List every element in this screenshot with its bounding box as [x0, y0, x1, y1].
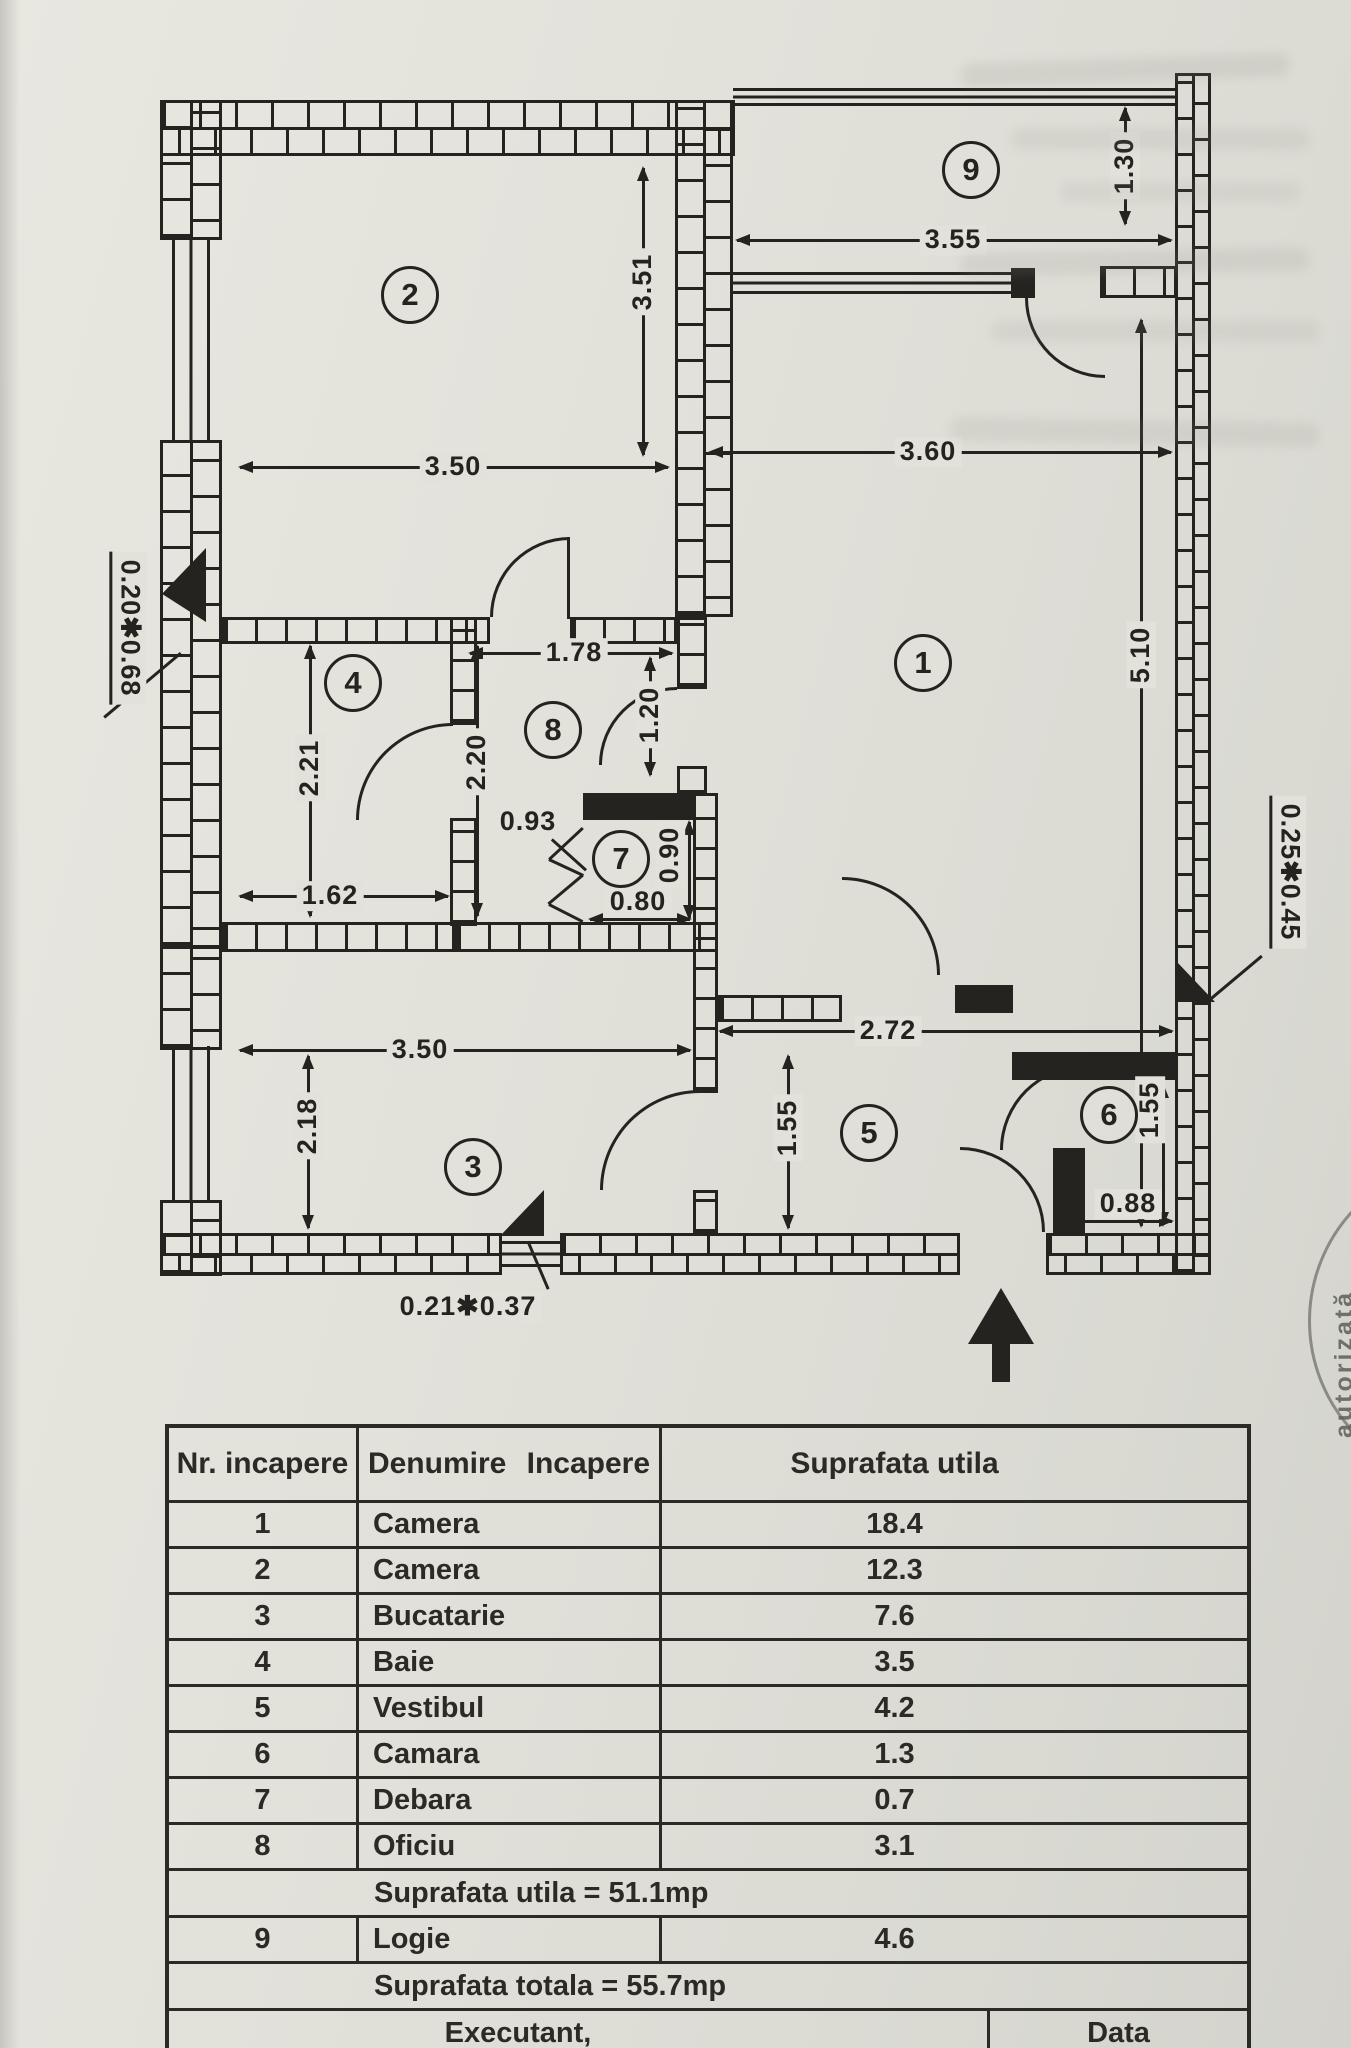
wall-interior [693, 793, 718, 1093]
leader-line [1208, 955, 1263, 1002]
total-label: Suprafata totala = 55.7mp [169, 1970, 726, 2003]
dim-label: 1.55 [773, 1095, 803, 1162]
shaft-label: 0.25✱0.45 [1270, 796, 1307, 949]
cell-name: Bucatarie [356, 1595, 659, 1638]
page-edge-shadow [0, 0, 20, 2048]
table-row: 5 Vestibul 4.2 [169, 1684, 1247, 1730]
dim-line [720, 1030, 1172, 1033]
window [172, 1046, 210, 1202]
wall-exterior [160, 100, 222, 240]
header-nr: Nr. incapere [169, 1447, 356, 1481]
cell-area: 7.6 [659, 1595, 1247, 1638]
table-row: 6 Camara 1.3 [169, 1730, 1247, 1776]
room-number-9: 9 [942, 141, 1000, 199]
loggia-railing [733, 88, 1175, 106]
executant-label: Executant, [169, 2017, 987, 2048]
wall-exterior [675, 100, 733, 617]
cell-area: 12.3 [659, 1549, 1247, 1592]
subtotal-row: Suprafata utila = 51.1mp [169, 1868, 1247, 1915]
dim-label: 3.60 [895, 437, 962, 467]
dim-label: 1.20 [635, 682, 665, 749]
cell-name: Baie [356, 1641, 659, 1684]
table-row: 9 Logie 4.6 [169, 1915, 1247, 1961]
wall-interior [955, 985, 1013, 1013]
table-row: 2 Camera 12.3 [169, 1546, 1247, 1592]
scanned-floor-plan-page: 3.50 3.51 3.55 1.30 3.60 5.10 1.78 1.20 … [0, 0, 1351, 2048]
wall-exterior [560, 1233, 960, 1275]
room-number-1: 1 [894, 634, 952, 692]
wall-interior [677, 766, 707, 796]
dim-label: 1.62 [297, 881, 364, 911]
wall-interior [222, 922, 455, 952]
cell-name: Camera [356, 1549, 659, 1592]
room-number-3: 3 [444, 1138, 502, 1196]
bleed-through-mark [960, 52, 1291, 88]
cell-area: 4.6 [659, 1918, 1247, 1961]
cell-nr: 2 [169, 1554, 356, 1587]
door-arc [842, 877, 940, 975]
bleed-through-mark [950, 417, 1320, 447]
dim-label: 0.90 [655, 822, 685, 889]
cell-nr: 3 [169, 1600, 356, 1633]
cell-nr: 1 [169, 1508, 356, 1541]
room-number-5: 5 [840, 1104, 898, 1162]
entrance-arrow-stem [992, 1340, 1010, 1382]
room-number-7: 7 [592, 830, 650, 888]
cell-nr: 6 [169, 1738, 356, 1771]
dim-label: 0.88 [1095, 1189, 1162, 1219]
wall-interior [677, 617, 707, 689]
wall-interior [718, 995, 842, 1022]
bleed-through-mark [1060, 182, 1300, 202]
cell-nr: 5 [169, 1692, 356, 1725]
dim-line [590, 918, 690, 921]
dim-line [1058, 1220, 1172, 1223]
wall-exterior [160, 100, 735, 156]
dim-line [240, 1049, 690, 1052]
table-header-row: Nr. incapere Denumire Incapere Suprafata… [169, 1428, 1247, 1500]
dim-label: 3.50 [420, 452, 487, 482]
door-arc [600, 1090, 700, 1190]
dim-label: 0.80 [605, 887, 672, 917]
door-arc [356, 723, 453, 820]
accordion-door [548, 874, 584, 905]
dim-line [688, 822, 691, 918]
cell-area: 3.5 [659, 1641, 1247, 1684]
table-row: 1 Camera 18.4 [169, 1500, 1247, 1546]
subtotal-label: Suprafata utila = 51.1mp [169, 1877, 708, 1910]
door-arc [960, 1147, 1045, 1232]
wall-exterior [1046, 1233, 1211, 1275]
dim-label: 2.18 [293, 1093, 323, 1160]
data-label: Data [987, 2011, 1247, 2048]
door-leaf [567, 537, 570, 619]
table-row: 8 Oficiu 3.1 [169, 1822, 1247, 1868]
cell-area: 4.2 [659, 1687, 1247, 1730]
entrance-arrow-icon [968, 1288, 1034, 1344]
dim-label: 5.10 [1126, 622, 1156, 689]
dim-label: 2.20 [462, 729, 492, 796]
dim-label: 1.55 [1135, 1077, 1165, 1144]
cell-nr: 9 [169, 1923, 356, 1956]
wall-interior [455, 922, 718, 952]
window [172, 238, 210, 442]
stamp-text: autorizată [1330, 1290, 1351, 1438]
room-number-8: 8 [524, 701, 582, 759]
room-area-table: Nr. incapere Denumire Incapere Suprafata… [165, 1424, 1251, 2048]
wall-interior [583, 793, 695, 820]
table-row: 7 Debara 0.7 [169, 1776, 1247, 1822]
cell-name: Debara [356, 1779, 659, 1822]
wall-interior [450, 617, 477, 725]
table-row: 3 Bucatarie 7.6 [169, 1592, 1247, 1638]
cell-nr: 8 [169, 1830, 356, 1863]
cell-name: Camara [356, 1733, 659, 1776]
shaft-label: 0.21✱0.37 [395, 1292, 542, 1322]
cell-name: Vestibul [356, 1687, 659, 1730]
total-row: Suprafata totala = 55.7mp [169, 1961, 1247, 2008]
dim-label: 2.21 [295, 735, 325, 802]
dim-label: 1.78 [541, 638, 608, 668]
cell-name: Oficiu [356, 1825, 659, 1868]
cell-area: 1.3 [659, 1733, 1247, 1776]
table-row: 4 Baie 3.5 [169, 1638, 1247, 1684]
wall-exterior [160, 440, 222, 948]
room-number-2: 2 [381, 266, 439, 324]
bleed-through-mark [990, 320, 1320, 342]
footer-row: Executant, Data [169, 2008, 1247, 2048]
wall-exterior [160, 1233, 502, 1275]
wall-interior [693, 1190, 718, 1235]
bleed-through-mark [1010, 128, 1310, 150]
dim-label: 3.55 [920, 225, 987, 255]
door-arc [490, 537, 570, 617]
header-area: Suprafata utila [659, 1428, 1247, 1500]
room-number-6: 6 [1080, 1086, 1138, 1144]
wall-exterior [160, 946, 222, 1050]
dim-label: 0.93 [495, 807, 562, 837]
cell-area: 0.7 [659, 1779, 1247, 1822]
dim-label: 3.51 [628, 249, 658, 316]
dim-label: 2.72 [855, 1016, 922, 1046]
dim-label: 3.50 [387, 1035, 454, 1065]
shaft-label: 0.20✱0.68 [110, 552, 147, 705]
accordion-door [548, 903, 583, 922]
cell-name: Logie [356, 1918, 659, 1961]
cell-name: Camera [356, 1503, 659, 1546]
cell-area: 18.4 [659, 1503, 1247, 1546]
header-name: Denumire Incapere [356, 1428, 659, 1500]
cell-nr: 4 [169, 1646, 356, 1679]
cell-nr: 7 [169, 1784, 356, 1817]
cell-area: 3.1 [659, 1825, 1247, 1868]
bleed-through-mark [960, 247, 1310, 277]
shaft-marker [500, 1190, 544, 1236]
room-number-4: 4 [324, 654, 382, 712]
